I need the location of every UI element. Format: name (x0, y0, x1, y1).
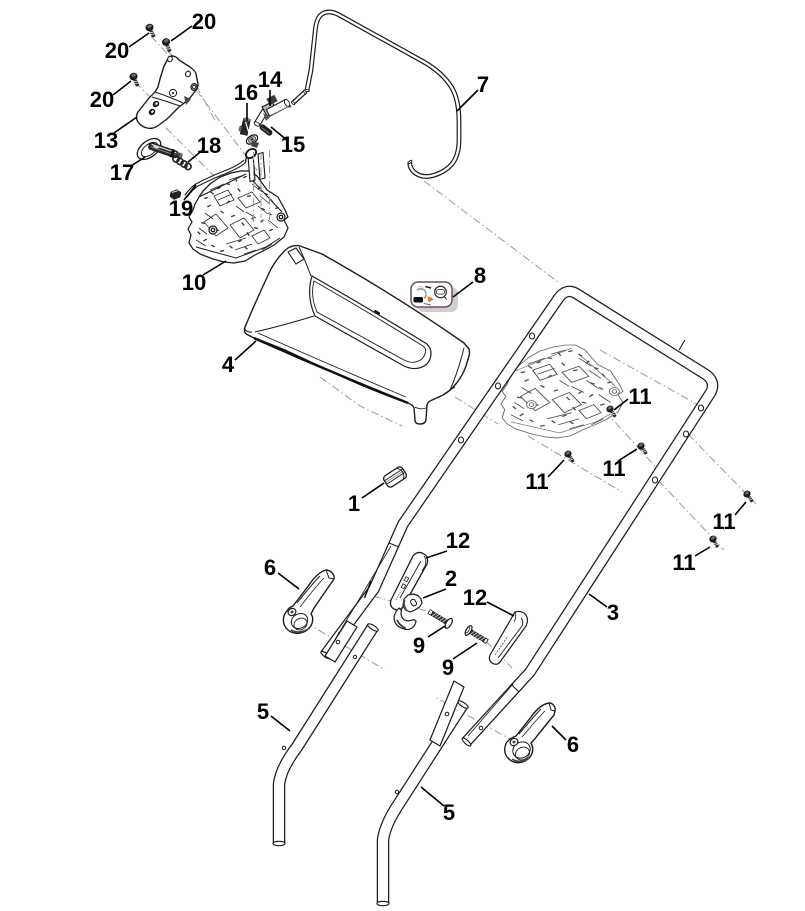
svg-text:19: 19 (169, 196, 193, 221)
svg-text:11: 11 (712, 509, 735, 534)
svg-text:5: 5 (257, 699, 269, 724)
svg-text:6: 6 (567, 732, 579, 757)
svg-text:10: 10 (182, 270, 206, 295)
svg-text:11: 11 (628, 384, 651, 409)
svg-text:9: 9 (413, 633, 425, 658)
svg-text:7: 7 (477, 72, 489, 97)
svg-text:11: 11 (525, 469, 548, 494)
svg-text:9: 9 (442, 655, 454, 680)
svg-text:11: 11 (602, 456, 625, 481)
svg-text:11: 11 (672, 550, 695, 575)
svg-text:20: 20 (105, 38, 129, 63)
svg-text:20: 20 (192, 9, 216, 34)
svg-text:4: 4 (222, 352, 235, 377)
svg-text:16: 16 (234, 80, 258, 105)
svg-text:15: 15 (281, 132, 305, 157)
svg-text:2: 2 (445, 566, 457, 591)
svg-text:1: 1 (348, 491, 360, 516)
svg-text:18: 18 (197, 133, 221, 158)
svg-text:12: 12 (463, 585, 487, 610)
svg-text:3: 3 (607, 600, 619, 625)
svg-text:20: 20 (90, 87, 114, 112)
svg-text:17: 17 (110, 160, 134, 185)
svg-text:8: 8 (474, 263, 486, 288)
svg-text:5: 5 (443, 800, 455, 825)
svg-text:12: 12 (446, 528, 470, 553)
svg-text:14: 14 (258, 67, 283, 92)
svg-text:6: 6 (264, 555, 276, 580)
svg-text:13: 13 (94, 128, 118, 153)
